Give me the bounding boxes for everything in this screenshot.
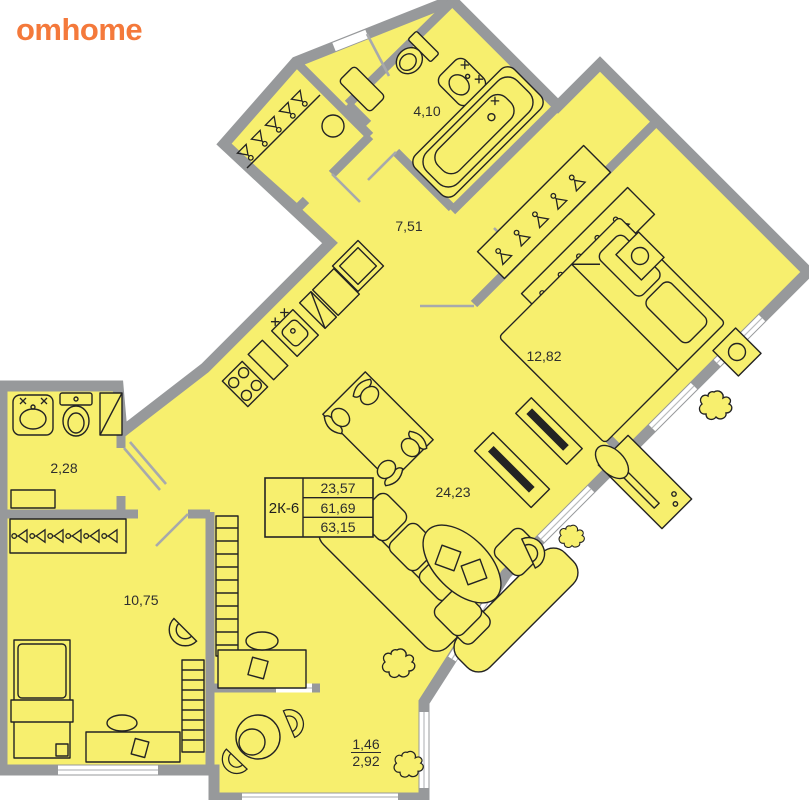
- svg-text:2,92: 2,92: [352, 753, 379, 769]
- shower-icon: [100, 393, 122, 435]
- washbasin-icon: [13, 395, 53, 435]
- room-label-living: 24,23: [435, 484, 470, 500]
- room-label-corridor: 7,51: [395, 218, 422, 234]
- bed-single-icon: [11, 640, 73, 758]
- unit-area-row: 63,15: [320, 519, 355, 535]
- wardrobe-icon: [10, 519, 126, 553]
- shelf-icon: [182, 660, 204, 752]
- unit-area-row: 61,69: [320, 500, 355, 516]
- floor-plan: 4,10 7,51 12,82 24,23 2,28 10,75 1,46 2,…: [0, 0, 809, 800]
- shelf-icon: [216, 516, 238, 656]
- radiator-icon: [11, 490, 55, 508]
- stool-icon: [322, 115, 344, 137]
- svg-text:1,46: 1,46: [352, 736, 379, 752]
- plant-icon: [559, 525, 584, 547]
- omhome-logo[interactable]: omhome: [16, 12, 142, 48]
- room-label-bathroom-left: 2,28: [50, 460, 77, 476]
- unit-info-card: 2К-6 23,57 61,69 63,15: [265, 478, 373, 537]
- toilet-icon: [60, 393, 92, 436]
- window-icon: [242, 797, 398, 798]
- room-label-bathroom-top: 4,10: [413, 103, 440, 119]
- room-label-bedroom: 12,82: [526, 348, 561, 364]
- plant-icon: [699, 391, 731, 419]
- unit-type-label: 2К-6: [269, 500, 299, 517]
- room-label-balcony: 1,46 2,92: [351, 736, 381, 769]
- unit-area-row: 23,57: [320, 480, 355, 496]
- balcony-table-icon: [236, 715, 280, 759]
- room-label-room-second: 10,75: [123, 592, 158, 608]
